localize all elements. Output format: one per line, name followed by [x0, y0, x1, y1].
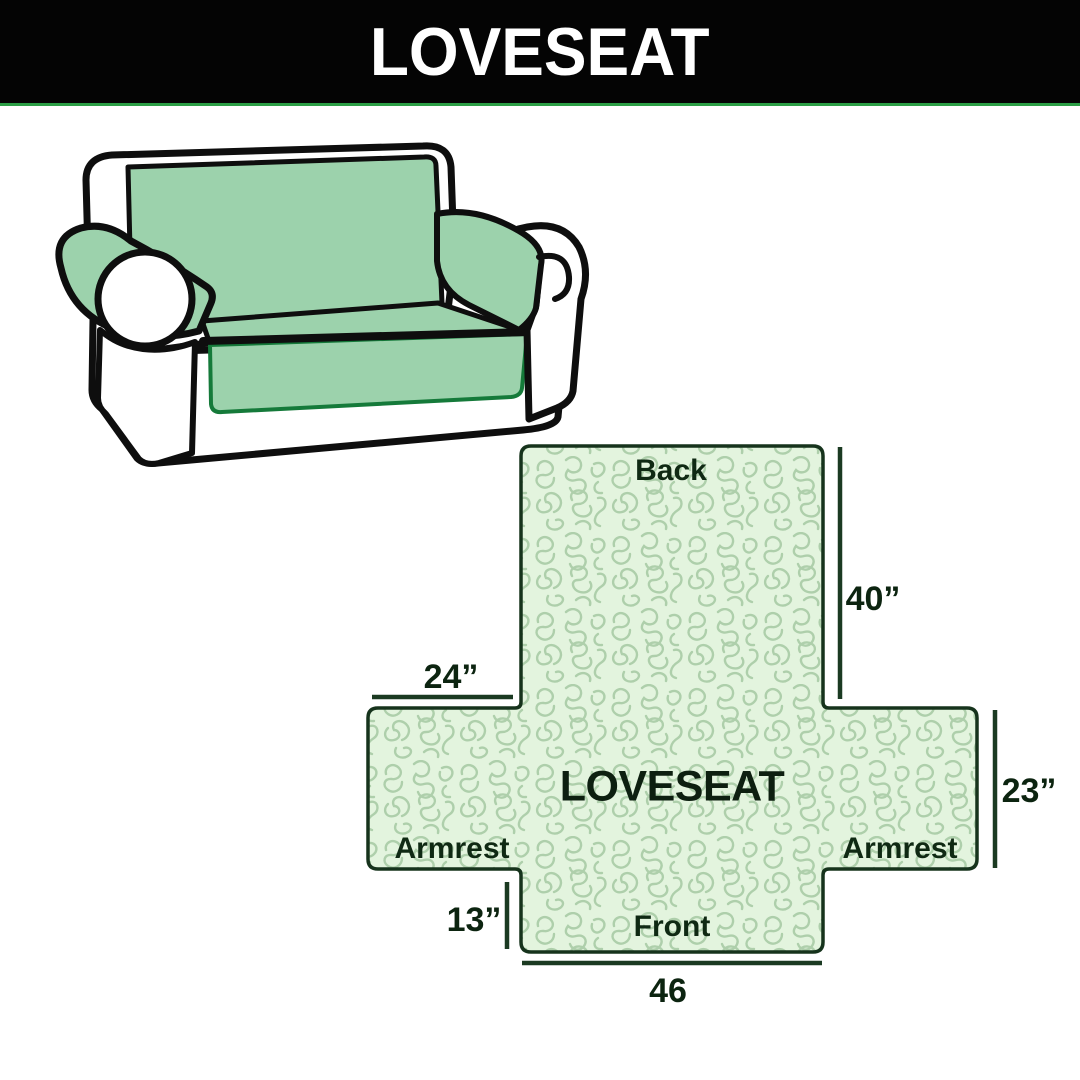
dimension-back-height: 40” — [846, 582, 901, 616]
sofa-skirt-cover — [210, 334, 527, 412]
loveseat-sofa-illustration — [59, 146, 586, 464]
armrest-right-label: Armrest — [842, 834, 957, 864]
back-section-label: Back — [635, 456, 707, 486]
sofa-left-arm-front — [98, 330, 195, 464]
front-section-label: Front — [634, 912, 711, 942]
armrest-left-label: Armrest — [394, 834, 509, 864]
dimension-armrest-side-height: 23” — [1002, 774, 1057, 808]
dimension-front-height: 13” — [447, 903, 502, 937]
diagram-center-label: LOVESEAT — [560, 766, 785, 809]
diagram-canvas — [0, 0, 1080, 1080]
sofa-left-arm-roll — [98, 252, 192, 346]
dimension-armrest-top-width: 24” — [424, 660, 479, 694]
infographic-page: LOVESEAT — [0, 0, 1080, 1080]
dimension-front-width: 46 — [649, 974, 687, 1008]
